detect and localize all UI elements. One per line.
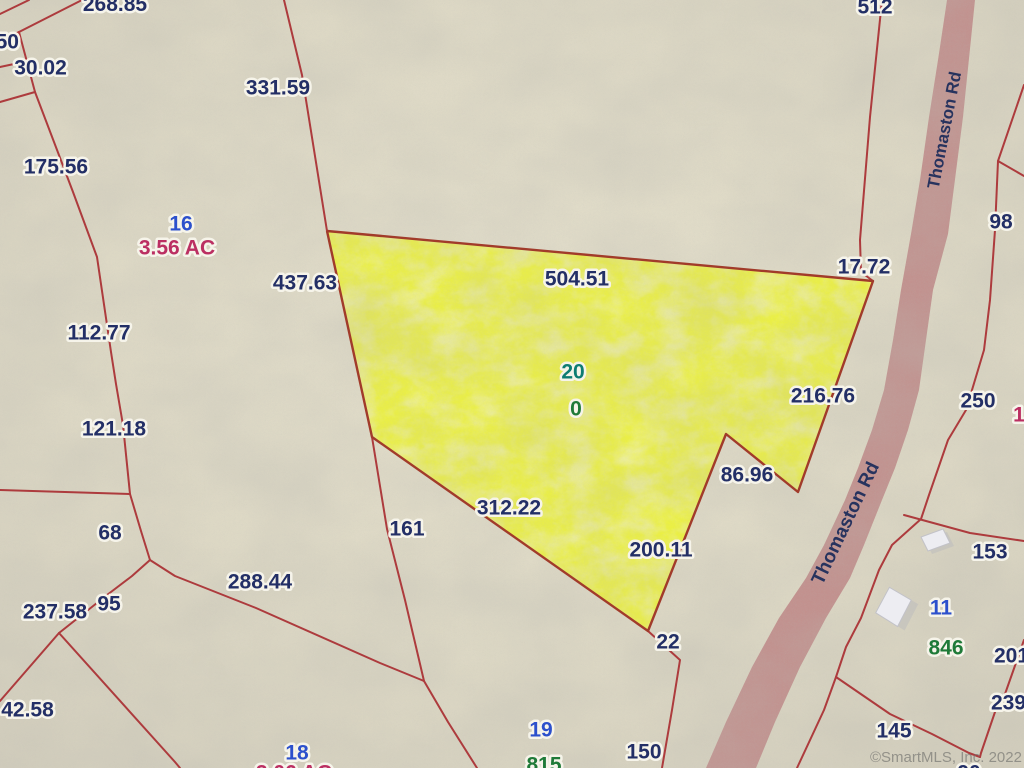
- svg-text:©SmartMLS, Inc. 2022: ©SmartMLS, Inc. 2022: [870, 749, 1022, 766]
- svg-text:1: 1: [1013, 404, 1024, 427]
- svg-text:3.56 AC: 3.56 AC: [139, 237, 215, 260]
- svg-text:201: 201: [994, 645, 1024, 668]
- svg-text:98: 98: [989, 211, 1013, 234]
- svg-text:161: 161: [389, 518, 424, 541]
- svg-text:145: 145: [876, 720, 911, 743]
- svg-text:150: 150: [626, 741, 661, 764]
- svg-text:86.96: 86.96: [721, 464, 774, 487]
- svg-text:250: 250: [960, 390, 995, 413]
- svg-text:19: 19: [529, 719, 552, 742]
- svg-text:331.59: 331.59: [246, 77, 310, 100]
- svg-text:16: 16: [169, 213, 192, 236]
- svg-text:0: 0: [570, 398, 582, 421]
- svg-text:20: 20: [561, 361, 584, 384]
- svg-text:112.77: 112.77: [67, 322, 130, 345]
- svg-text:504.51: 504.51: [545, 268, 610, 291]
- svg-text:17.72: 17.72: [838, 256, 891, 279]
- svg-text:42.58: 42.58: [1, 699, 54, 722]
- svg-text:200.11: 200.11: [629, 539, 692, 562]
- svg-text:239: 239: [991, 692, 1024, 715]
- svg-text:237.58: 237.58: [23, 601, 88, 624]
- svg-text:30.02: 30.02: [14, 57, 67, 80]
- svg-text:3.06 AC: 3.06 AC: [256, 762, 332, 768]
- svg-text:250: 250: [0, 31, 19, 54]
- svg-text:846: 846: [928, 637, 963, 660]
- svg-text:312.22: 312.22: [477, 497, 541, 520]
- svg-text:22: 22: [656, 631, 679, 654]
- svg-text:95: 95: [97, 593, 121, 616]
- svg-text:512: 512: [857, 0, 892, 19]
- svg-text:288.44: 288.44: [228, 571, 293, 594]
- svg-text:437.63: 437.63: [273, 272, 337, 295]
- svg-text:121.18: 121.18: [82, 418, 147, 441]
- svg-text:815: 815: [526, 754, 561, 768]
- svg-text:153: 153: [972, 541, 1007, 564]
- svg-text:216.76: 216.76: [791, 385, 855, 408]
- svg-text:175.56: 175.56: [24, 156, 88, 179]
- svg-text:268.85: 268.85: [83, 0, 148, 16]
- svg-text:68: 68: [98, 522, 122, 545]
- svg-text:11: 11: [930, 597, 953, 620]
